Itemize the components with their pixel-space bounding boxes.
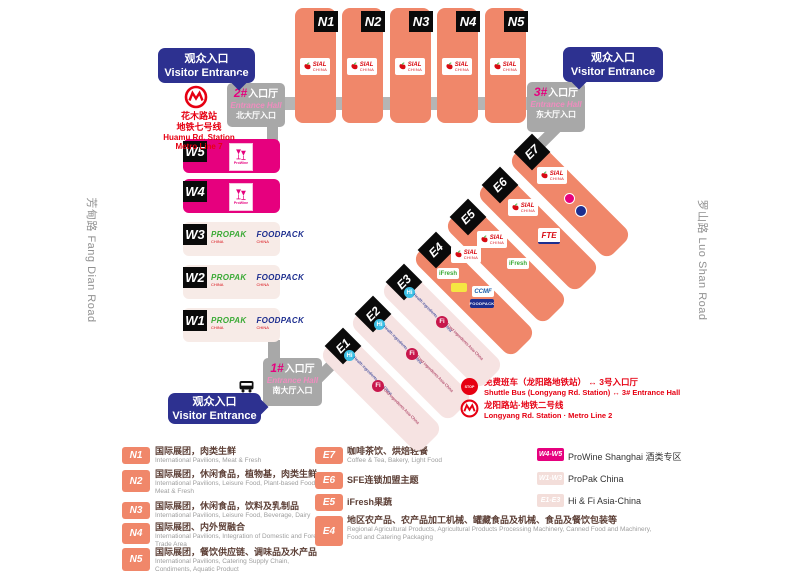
- legend-item-hifi: Hi & Fi Asia-China: [568, 496, 641, 506]
- hall-n4: N4 SIALCHINA: [437, 8, 478, 123]
- connector-w1-hall1: [268, 340, 280, 360]
- legend-badge-e1e3: E1-E3: [537, 494, 564, 507]
- legend-badge-e5: E5: [315, 494, 343, 511]
- prowine-logo: ProWine: [229, 183, 253, 211]
- hall-n5-label: N5: [504, 11, 528, 32]
- small-logo-icon: [575, 205, 587, 217]
- legend-item-n5: 国际展团，餐饮供应链、调味品及水产品 International Pavilio…: [155, 547, 327, 574]
- entrance-hall-1-box: 1#入口厅 Entrance Hall 南大厅入口: [263, 358, 322, 406]
- legend-badge-w4w5: W4-W5: [537, 448, 564, 461]
- hall-n5: N5 SIALCHINA: [485, 8, 526, 123]
- ifresh-logo: iFresh: [437, 268, 459, 279]
- apple-icon: [350, 62, 359, 71]
- legend-item-e4: 地区农产品、农产品加工机械、罐藏食品及机械、食品及餐饮包装等 Regional …: [347, 515, 667, 542]
- sial-china-logo: SIALCHINA: [300, 58, 330, 75]
- wine-glasses-icon: [234, 188, 248, 202]
- sial-china-logo: SIALCHINA: [477, 231, 507, 248]
- hall-n2: N2 SIALCHINA: [342, 8, 383, 123]
- huamu-station-label: 花木路站 地铁七号线 Huamu Rd. Station Metro Line …: [147, 111, 251, 152]
- legend-item-propak: ProPak China: [568, 474, 624, 484]
- sial-china-logo: SIALCHINA: [442, 58, 472, 75]
- apple-icon: [454, 250, 463, 259]
- metro-icon: [184, 85, 208, 109]
- shuttle-bus-info: 免费班车（龙阳路地铁站） ↔ 3号入口厅 Shuttle Bus (Longya…: [484, 377, 714, 398]
- apple-icon: [398, 62, 407, 71]
- metro-icon: [460, 399, 479, 418]
- hall-w1: W1 PROPAKCHINA FOODPACKCHINA: [183, 308, 280, 342]
- sial-china-logo: SIALCHINA: [451, 246, 481, 263]
- ifresh-logo: iFresh: [507, 258, 529, 269]
- hall-w3: W3 PROPAKCHINA FOODPACKCHINA: [183, 222, 280, 256]
- ccmf-logo: CCMF: [472, 286, 494, 297]
- yellow-logo: [451, 283, 467, 292]
- visitor-entrance-bubble-south: 观众入口 Visitor Entrance: [168, 393, 261, 424]
- legend-badge-n5: N5: [122, 548, 150, 571]
- hall-w1-label: W1: [183, 310, 207, 331]
- hall-n3: N3 SIALCHINA: [390, 8, 431, 123]
- apple-icon: [480, 235, 489, 244]
- legend-item-n3: 国际展团，休闲食品，饮料及乳制品 International Pavilions…: [155, 501, 327, 520]
- hall-n3-label: N3: [409, 11, 433, 32]
- propak-foodpack-logos: PROPAKCHINA FOODPACKCHINA: [211, 231, 304, 244]
- sial-china-logo: SIALCHINA: [508, 199, 538, 216]
- legend-badge-n4: N4: [122, 523, 150, 544]
- hall-w4-label: W4: [183, 181, 207, 202]
- hall-w4: W4 ProWine: [183, 179, 280, 213]
- legend-badge-e4: E4: [315, 516, 343, 546]
- legend-item-prowine: ProWine Shanghai 酒类专区: [568, 450, 682, 463]
- legend-badge-e7: E7: [315, 447, 343, 464]
- legend-item-n4: 国际展团、内外贸融合 International Pavilions, Inte…: [155, 522, 327, 549]
- propak-foodpack-logos: PROPAKCHINA FOODPACKCHINA: [211, 274, 304, 287]
- foodpack-logo: FOODPACK: [470, 299, 494, 308]
- apple-icon: [511, 203, 520, 212]
- hall-w3-label: W3: [183, 224, 207, 245]
- hall-n2-label: N2: [361, 11, 385, 32]
- road-label-luoshan: 罗山路 Luo Shan Road: [695, 178, 711, 342]
- apple-icon: [493, 62, 502, 71]
- sial-china-logo: SIALCHINA: [490, 58, 520, 75]
- hall-n1: N1 SIALCHINA: [295, 8, 336, 123]
- road-label-fangdian: 芳甸路 Fang Dian Road: [84, 178, 100, 342]
- apple-icon: [540, 171, 549, 180]
- visitor-entrance-bubble-east: 观众入口 Visitor Entrance: [563, 47, 663, 82]
- legend-badge-w1w3: W1-W3: [537, 472, 564, 485]
- fte-logo: FTE: [538, 228, 560, 244]
- small-logo-icon: [564, 193, 575, 204]
- expo-floor-map: 芳甸路 Fang Dian Road 罗山路 Luo Shan Road N1 …: [0, 0, 790, 576]
- legend-badge-n3: N3: [122, 502, 150, 519]
- legend-badge-n1: N1: [122, 447, 150, 464]
- visitor-entrance-bubble-north: 观众入口 Visitor Entrance: [158, 48, 255, 83]
- hall-w2-label: W2: [183, 267, 207, 288]
- stop-icon: STOP: [461, 378, 478, 395]
- entrance-hall-3-box: 3#入口厅 Entrance Hall 东大厅入口: [527, 82, 585, 132]
- longyang-station-info: 龙阳路站·地铁二号线 Longyang Rd. Station · Metro …: [484, 400, 714, 421]
- apple-icon: [303, 62, 312, 71]
- hall-w2: W2 PROPAKCHINA FOODPACKCHINA: [183, 265, 280, 299]
- sial-china-logo: SIALCHINA: [537, 167, 567, 184]
- legend-badge-n2: N2: [122, 470, 150, 492]
- apple-icon: [445, 62, 454, 71]
- legend-item-n1: 国际展团，肉类生鲜 International Pavilions, Meat …: [155, 446, 327, 465]
- sial-china-logo: SIALCHINA: [395, 58, 425, 75]
- propak-foodpack-logos: PROPAKCHINA FOODPACKCHINA: [211, 317, 304, 330]
- bus-icon: [239, 380, 254, 393]
- legend-badge-e6: E6: [315, 472, 343, 489]
- hall-n4-label: N4: [456, 11, 480, 32]
- legend-item-n2: 国际展团，休闲食品，植物基，肉类生鲜 International Pavilio…: [155, 469, 327, 496]
- hall-n1-label: N1: [314, 11, 338, 32]
- sial-china-logo: SIALCHINA: [347, 58, 377, 75]
